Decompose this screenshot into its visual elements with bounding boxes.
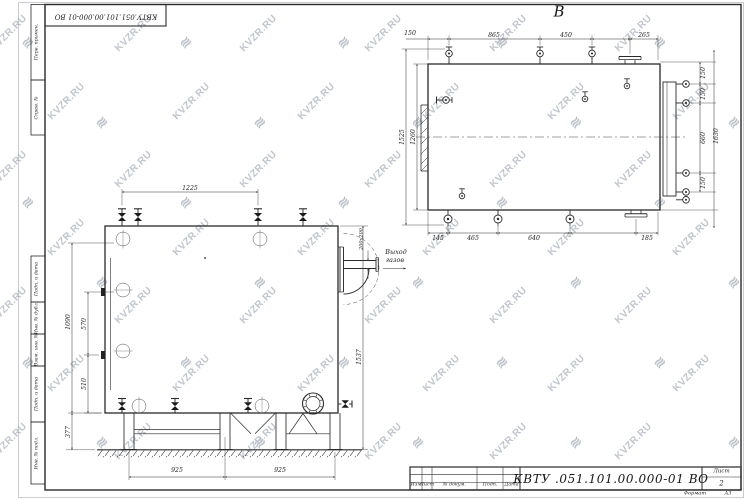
margin-label-podp-data-2: Подп. и дата (36, 377, 41, 411)
dim-1260: 1260 (410, 129, 416, 145)
top-view (402, 36, 718, 236)
valve-icons-top (446, 47, 596, 64)
sheet-frame (19, 3, 744, 498)
gas-outlet-label-line1: Выход (385, 248, 406, 254)
margin-label-vzam-inv: Взам. инв. № (36, 334, 41, 367)
dim-660: 660 (700, 132, 706, 144)
dim-640: 640 (528, 235, 540, 241)
gauge-nub (101, 351, 106, 359)
dim-1537: 1537 (356, 349, 362, 365)
margin-label-inv-podl: Инв. № подл. (36, 437, 41, 470)
front-view-body (105, 226, 338, 413)
support-frame (122, 413, 343, 450)
format-value: А3 (725, 491, 732, 496)
dim-150-r2: 150 (700, 88, 706, 100)
level-gauge-column (663, 82, 676, 196)
gas-outlet (338, 234, 406, 305)
dim-150-top: 150 (404, 30, 416, 36)
dim-865: 865 (488, 33, 500, 39)
dim-265: 265 (638, 33, 650, 39)
margin-label-podp-data-1: Подп. и дата (36, 262, 41, 296)
dim-150-r3: 150 (700, 177, 706, 189)
sheet-number: 2 (719, 481, 723, 488)
dim-outlet-size: 200х200 (359, 228, 364, 250)
dim-1090: 1090 (65, 314, 71, 330)
dim-377: 377 (65, 426, 71, 438)
margin-label-perv-primen: Перв. примен. (36, 24, 41, 61)
flange-icon-top (619, 57, 641, 65)
titleblock-col-podp: Подп. (483, 484, 498, 489)
valve-icons-interior (437, 79, 630, 199)
top-stamp-text: КВТУ.051.101.00.000-01 ВО (54, 12, 157, 19)
titleblock-col-dokum: № докум. (443, 484, 466, 489)
dim-1525: 1525 (399, 129, 405, 145)
manhole-flange (421, 105, 428, 171)
doc-number: КВТУ .051.101.00.000-01 ВО (513, 473, 708, 485)
valve-icons-bottom (444, 210, 574, 226)
gate-valve-icon-right (338, 400, 352, 408)
dim-145: 145 (432, 235, 444, 241)
gate-valve-icons-bottom (118, 399, 252, 414)
dim-185: 185 (641, 235, 653, 241)
dim-925-left: 925 (171, 467, 183, 473)
dim-150-r1: 150 (700, 67, 706, 79)
gate-valve-icons-top (118, 209, 307, 226)
front-view (66, 189, 406, 480)
gas-outlet-label-line2: газов (386, 256, 404, 262)
valve-icons-right (676, 81, 689, 203)
nozzle-projection-circles (114, 230, 270, 414)
dim-450: 450 (560, 33, 572, 39)
margin-label-inv-dubl: Инв. № дубл. (36, 302, 41, 335)
format-label: Формат (684, 491, 706, 496)
view-label-B: В (553, 5, 564, 20)
top-view-dims-bottom (428, 212, 658, 236)
dim-1225: 1225 (182, 185, 198, 191)
titleblock-col-list: Лист (420, 484, 434, 489)
margin-label-sprav-no: Справ. № (36, 96, 41, 119)
drawing-sheet: KVZR.RUKVZR.RUKVZR.RUKVZR.RUKVZR.RUKVZR.… (0, 0, 750, 500)
drawing-linework (0, 0, 750, 500)
sheet-label: Лист (713, 469, 729, 475)
dim-925-right: 925 (274, 467, 286, 473)
dim-570: 570 (81, 318, 87, 330)
dim-510: 510 (81, 378, 87, 390)
dim-465: 465 (467, 235, 479, 241)
ground-hatch (97, 450, 362, 458)
flange-icon-bottom (625, 210, 647, 217)
dim-1630: 1630 (714, 128, 720, 144)
front-view-dims (66, 189, 368, 480)
burner-flange (303, 393, 324, 414)
